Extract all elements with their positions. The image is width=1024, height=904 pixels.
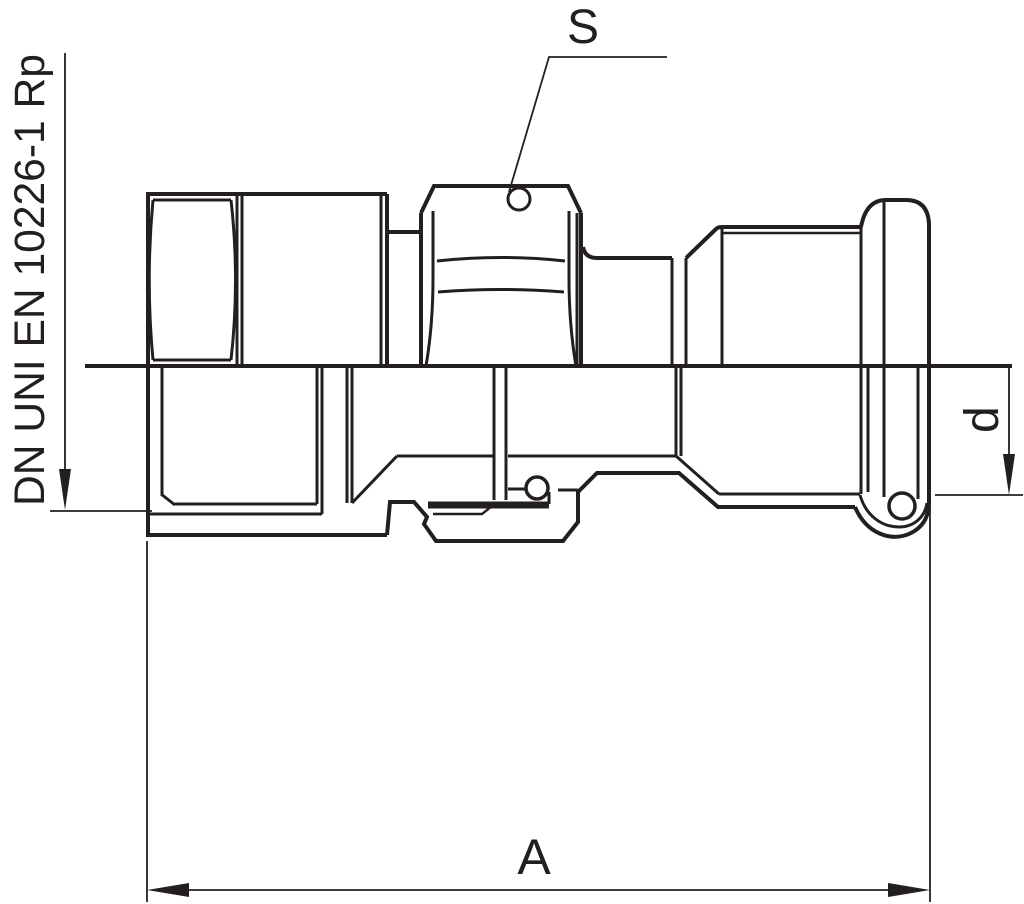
thread-standard-label: DN UNI EN 10226-1 Rp <box>6 54 54 506</box>
oring-union-cross-section <box>526 477 548 499</box>
oring-socket-cross-section <box>889 493 915 519</box>
technical-drawing: DN UNI EN 10226-1 Rp S d A <box>0 0 1024 904</box>
drawing-background <box>0 0 1024 904</box>
drawing-canvas: DN UNI EN 10226-1 Rp S d A <box>0 0 1024 904</box>
s-indicator-hole <box>508 188 530 210</box>
tube-diameter-label: d <box>956 406 1009 433</box>
wrench-size-label: S <box>567 1 599 54</box>
overall-length-label: A <box>517 829 551 885</box>
